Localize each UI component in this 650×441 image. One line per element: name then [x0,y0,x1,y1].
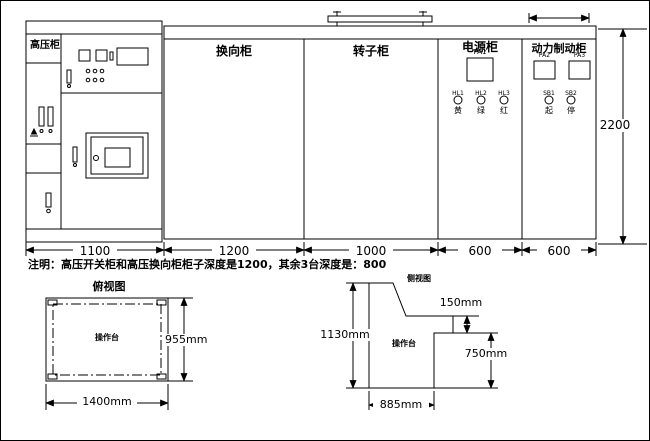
meter-pa3 [569,61,590,79]
drawing-linework [1,1,649,440]
cabinet-label-rotor: 转子柜 [331,45,411,58]
height-dimension-lines [598,29,647,244]
lamp-color-green: 绿 [473,107,489,115]
lamp-tag-hl1: HL1 [448,91,468,97]
dim-width-1000: 1000 [349,245,393,258]
top-view-title: 俯视图 [81,281,137,293]
button-char-stop: 停 [563,107,579,115]
lamp-tag-hl2: HL2 [471,91,491,97]
meter-pa2 [534,61,555,79]
cabinet-layout-drawing: 高压柜 换向柜 转子柜 电源柜 动力制动柜 PA1 HL1 HL2 HL3 黄 … [0,0,650,441]
side-view-console-label: 操作台 [382,340,426,348]
button-tag-sb2: SB2 [561,91,581,97]
dim-width-600a: 600 [458,245,502,258]
keyhole-icon [94,156,99,161]
depth-note: 注明：高压开关柜和高压换向柜柜子深度是1200，其余3台深度是：800 [28,259,386,271]
meter-label-pa1: PA1 [463,49,497,56]
dim-step-150: 150mm [438,297,484,309]
top-view-console-label: 操作台 [85,334,129,342]
dim-width-1100: 1100 [73,245,117,258]
dim-width-1200: 1200 [212,245,256,258]
meter-pa1 [467,58,493,81]
button-tag-sb1: SB1 [539,91,559,97]
lamp-color-red: 红 [496,107,512,115]
dim-depth-955: 955mm [165,334,205,346]
meter-label-pa3: PA3 [569,53,590,59]
side-view-title: 侧视图 [397,275,441,283]
cabinet-label-commutation: 换向柜 [194,45,274,58]
high-voltage-cabinet-linework [26,21,162,242]
dim-width-1400: 1400mm [77,396,137,408]
dim-height-1130: 1130mm [317,329,373,341]
width-arrow-icon [529,13,589,23]
dim-height-2200: 2200 [597,119,633,132]
meter-label-pa2: PA2 [534,53,555,59]
top-view-linework [46,298,193,410]
lamp-color-yellow: 黄 [450,107,466,115]
dim-width-600b: 600 [537,245,581,258]
lamp-tag-hl3: HL3 [494,91,514,97]
cabinet-label-high-voltage: 高压柜 [27,41,63,52]
brake-cabinet-components [534,61,590,104]
dim-front-750: 750mm [462,348,510,360]
dim-base-885: 885mm [373,399,429,411]
button-char-start: 起 [541,107,557,115]
lifting-bar-icon [328,11,432,26]
arrow-up-icon [32,129,37,134]
